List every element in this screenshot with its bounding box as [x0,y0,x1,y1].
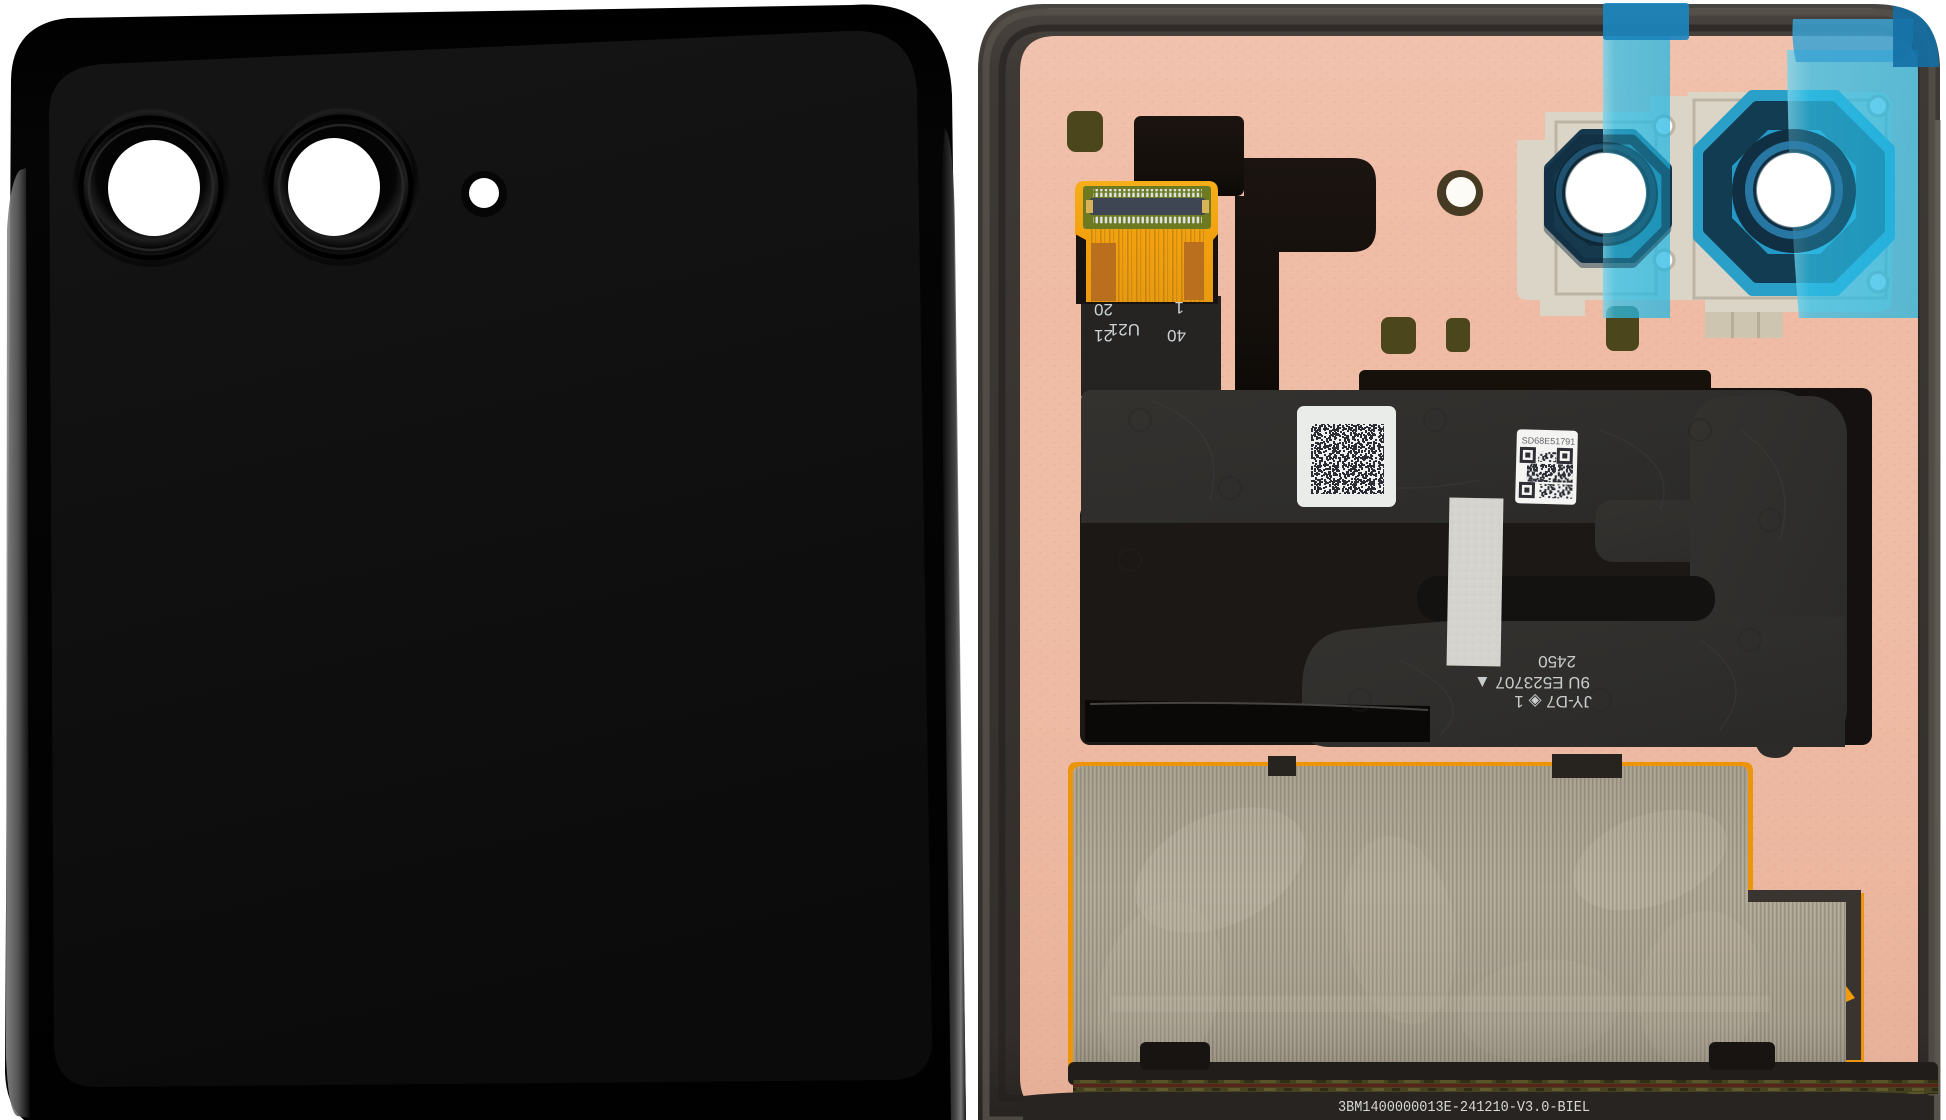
svg-text:1: 1 [1175,298,1184,317]
svg-text:JY-D7 ◈ 1: JY-D7 ◈ 1 [1514,692,1592,711]
svg-text:3BM1400000013E-241210-V3.0-BIE: 3BM1400000013E-241210-V3.0-BIEL [1338,1099,1590,1116]
svg-text:20: 20 [1094,300,1113,319]
svg-text:U21: U21 [1109,320,1140,339]
svg-text:40: 40 [1167,326,1186,345]
svg-text:SD68E51791: SD68E51791 [1522,435,1576,446]
svg-text:9U E523707 ▲: 9U E523707 ▲ [1474,673,1590,692]
svg-text:2450: 2450 [1538,652,1576,671]
